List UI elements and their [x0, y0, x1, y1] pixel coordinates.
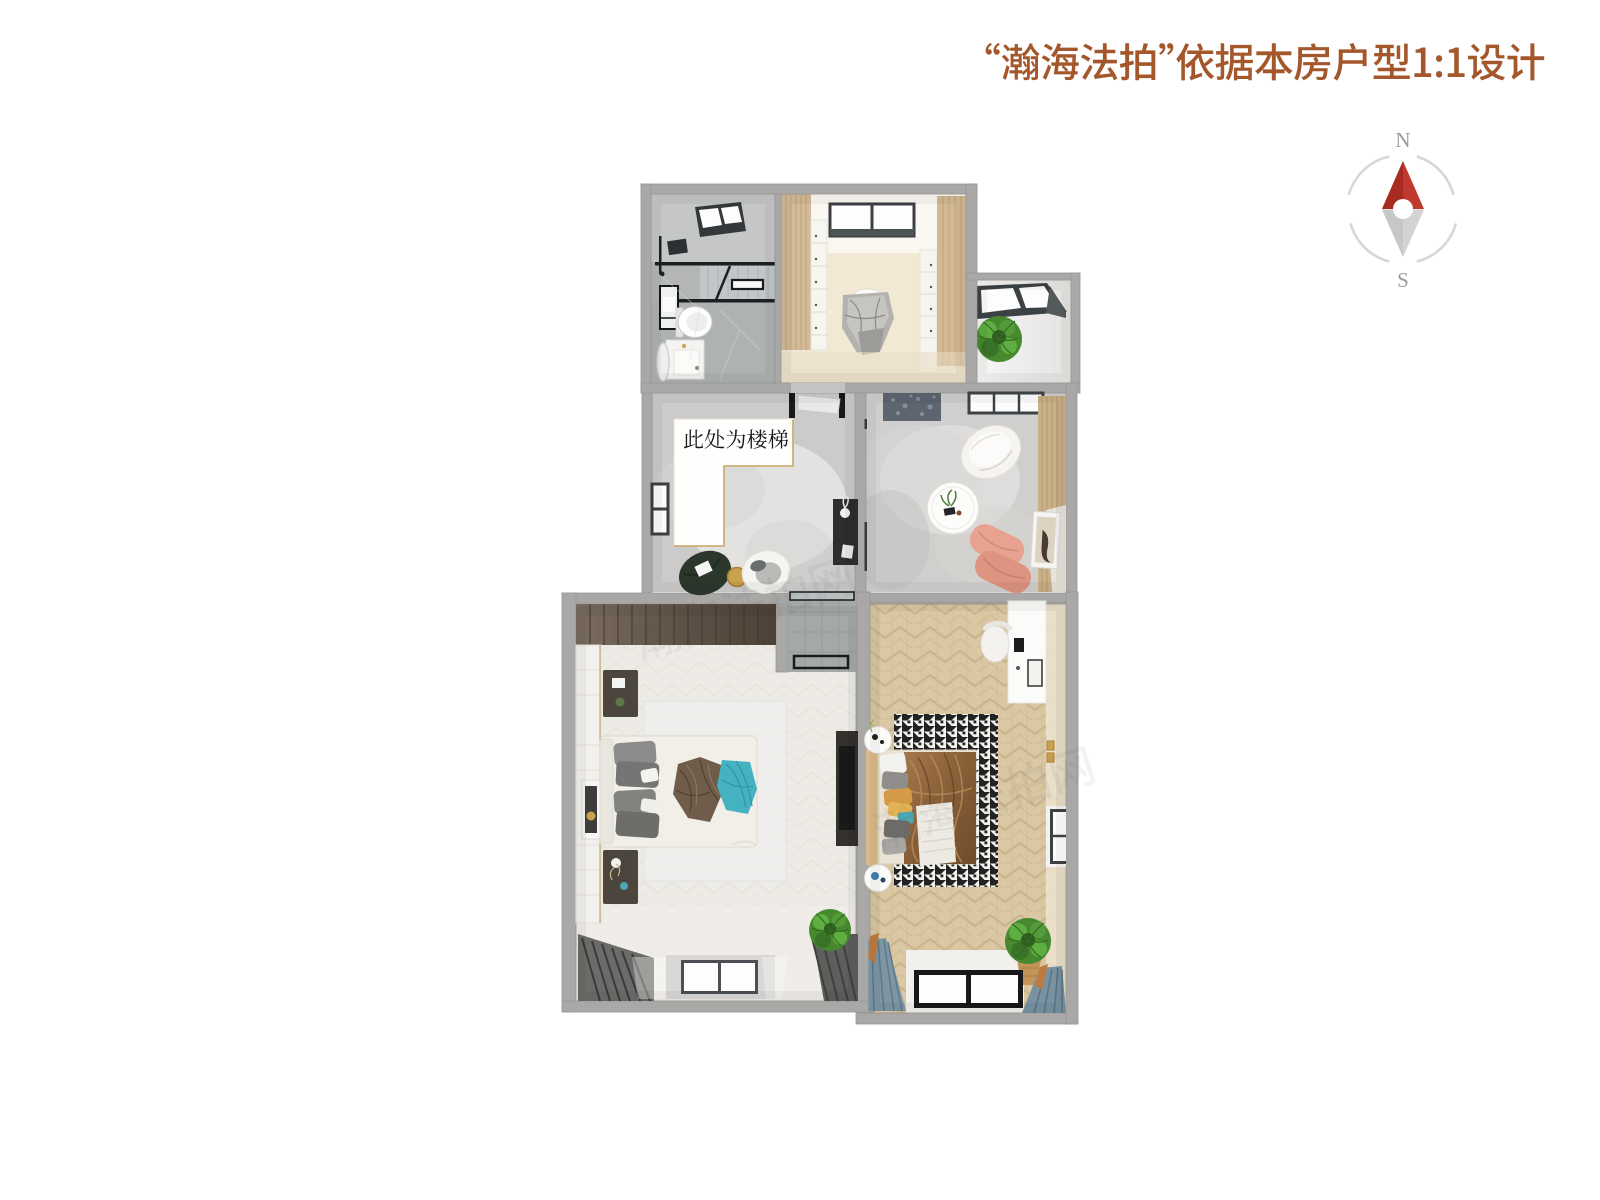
svg-text:N: N: [1395, 128, 1410, 152]
svg-text:S: S: [1397, 268, 1409, 292]
